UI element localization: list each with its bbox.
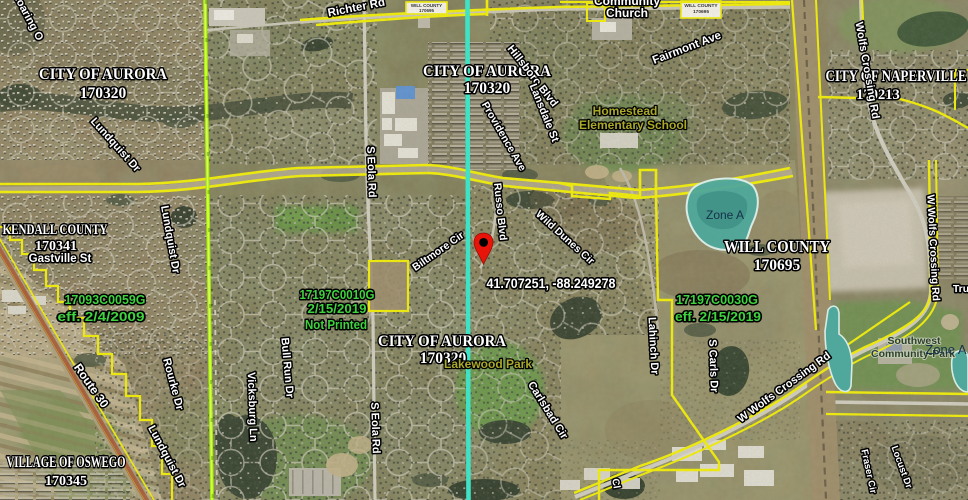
svg-text:CITY OF NAPERVILLE: CITY OF NAPERVILLE <box>826 68 967 85</box>
svg-text:170695: 170695 <box>754 257 801 274</box>
svg-text:CITY OF AURORA: CITY OF AURORA <box>39 66 167 83</box>
svg-text:WILL COUNTY: WILL COUNTY <box>724 237 830 256</box>
svg-text:17093C0059G: 17093C0059G <box>65 293 146 307</box>
svg-text:2/15/2019: 2/15/2019 <box>308 302 367 316</box>
svg-text:17197C0010G: 17197C0010G <box>300 288 375 302</box>
svg-text:170695: 170695 <box>693 9 709 15</box>
svg-text:Zone A: Zone A <box>925 342 967 357</box>
svg-text:170320: 170320 <box>80 85 127 102</box>
svg-text:KENDALL COUNTY: KENDALL COUNTY <box>3 222 108 238</box>
svg-text:Tru: Tru <box>953 283 968 295</box>
svg-text:VILLAGE OF OSWEGO: VILLAGE OF OSWEGO <box>7 454 126 471</box>
svg-text:Elementary School: Elementary School <box>579 118 687 132</box>
svg-text:Zone A: Zone A <box>706 208 744 222</box>
svg-text:Lakewood Park: Lakewood Park <box>444 357 532 371</box>
svg-text:eff. 2/4/2009: eff. 2/4/2009 <box>58 310 145 324</box>
svg-text:41.707251, -88.249278: 41.707251, -88.249278 <box>487 276 616 291</box>
svg-text:S Eola Rd: S Eola Rd <box>368 402 382 454</box>
svg-text:WILL COUNTY: WILL COUNTY <box>684 3 718 9</box>
svg-text:Homestead: Homestead <box>593 104 658 118</box>
svg-text:170345: 170345 <box>45 474 87 489</box>
svg-text:170695: 170695 <box>419 8 435 13</box>
svg-text:Vicksburg Ln: Vicksburg Ln <box>245 372 259 442</box>
svg-text:Gastville St: Gastville St <box>29 253 92 265</box>
svg-text:S Carls Dr: S Carls Dr <box>706 339 720 393</box>
svg-text:17197C0030G: 17197C0030G <box>676 293 758 307</box>
svg-text:170320: 170320 <box>464 80 511 97</box>
svg-text:170341: 170341 <box>35 239 77 254</box>
svg-text:Not Printed: Not Printed <box>305 318 367 332</box>
svg-text:S Eola Rd: S Eola Rd <box>364 146 378 198</box>
svg-text:CITY OF AURORA: CITY OF AURORA <box>378 333 506 350</box>
svg-text:Church: Church <box>606 6 648 20</box>
svg-text:eff. 2/15/2019: eff. 2/15/2019 <box>675 310 761 324</box>
